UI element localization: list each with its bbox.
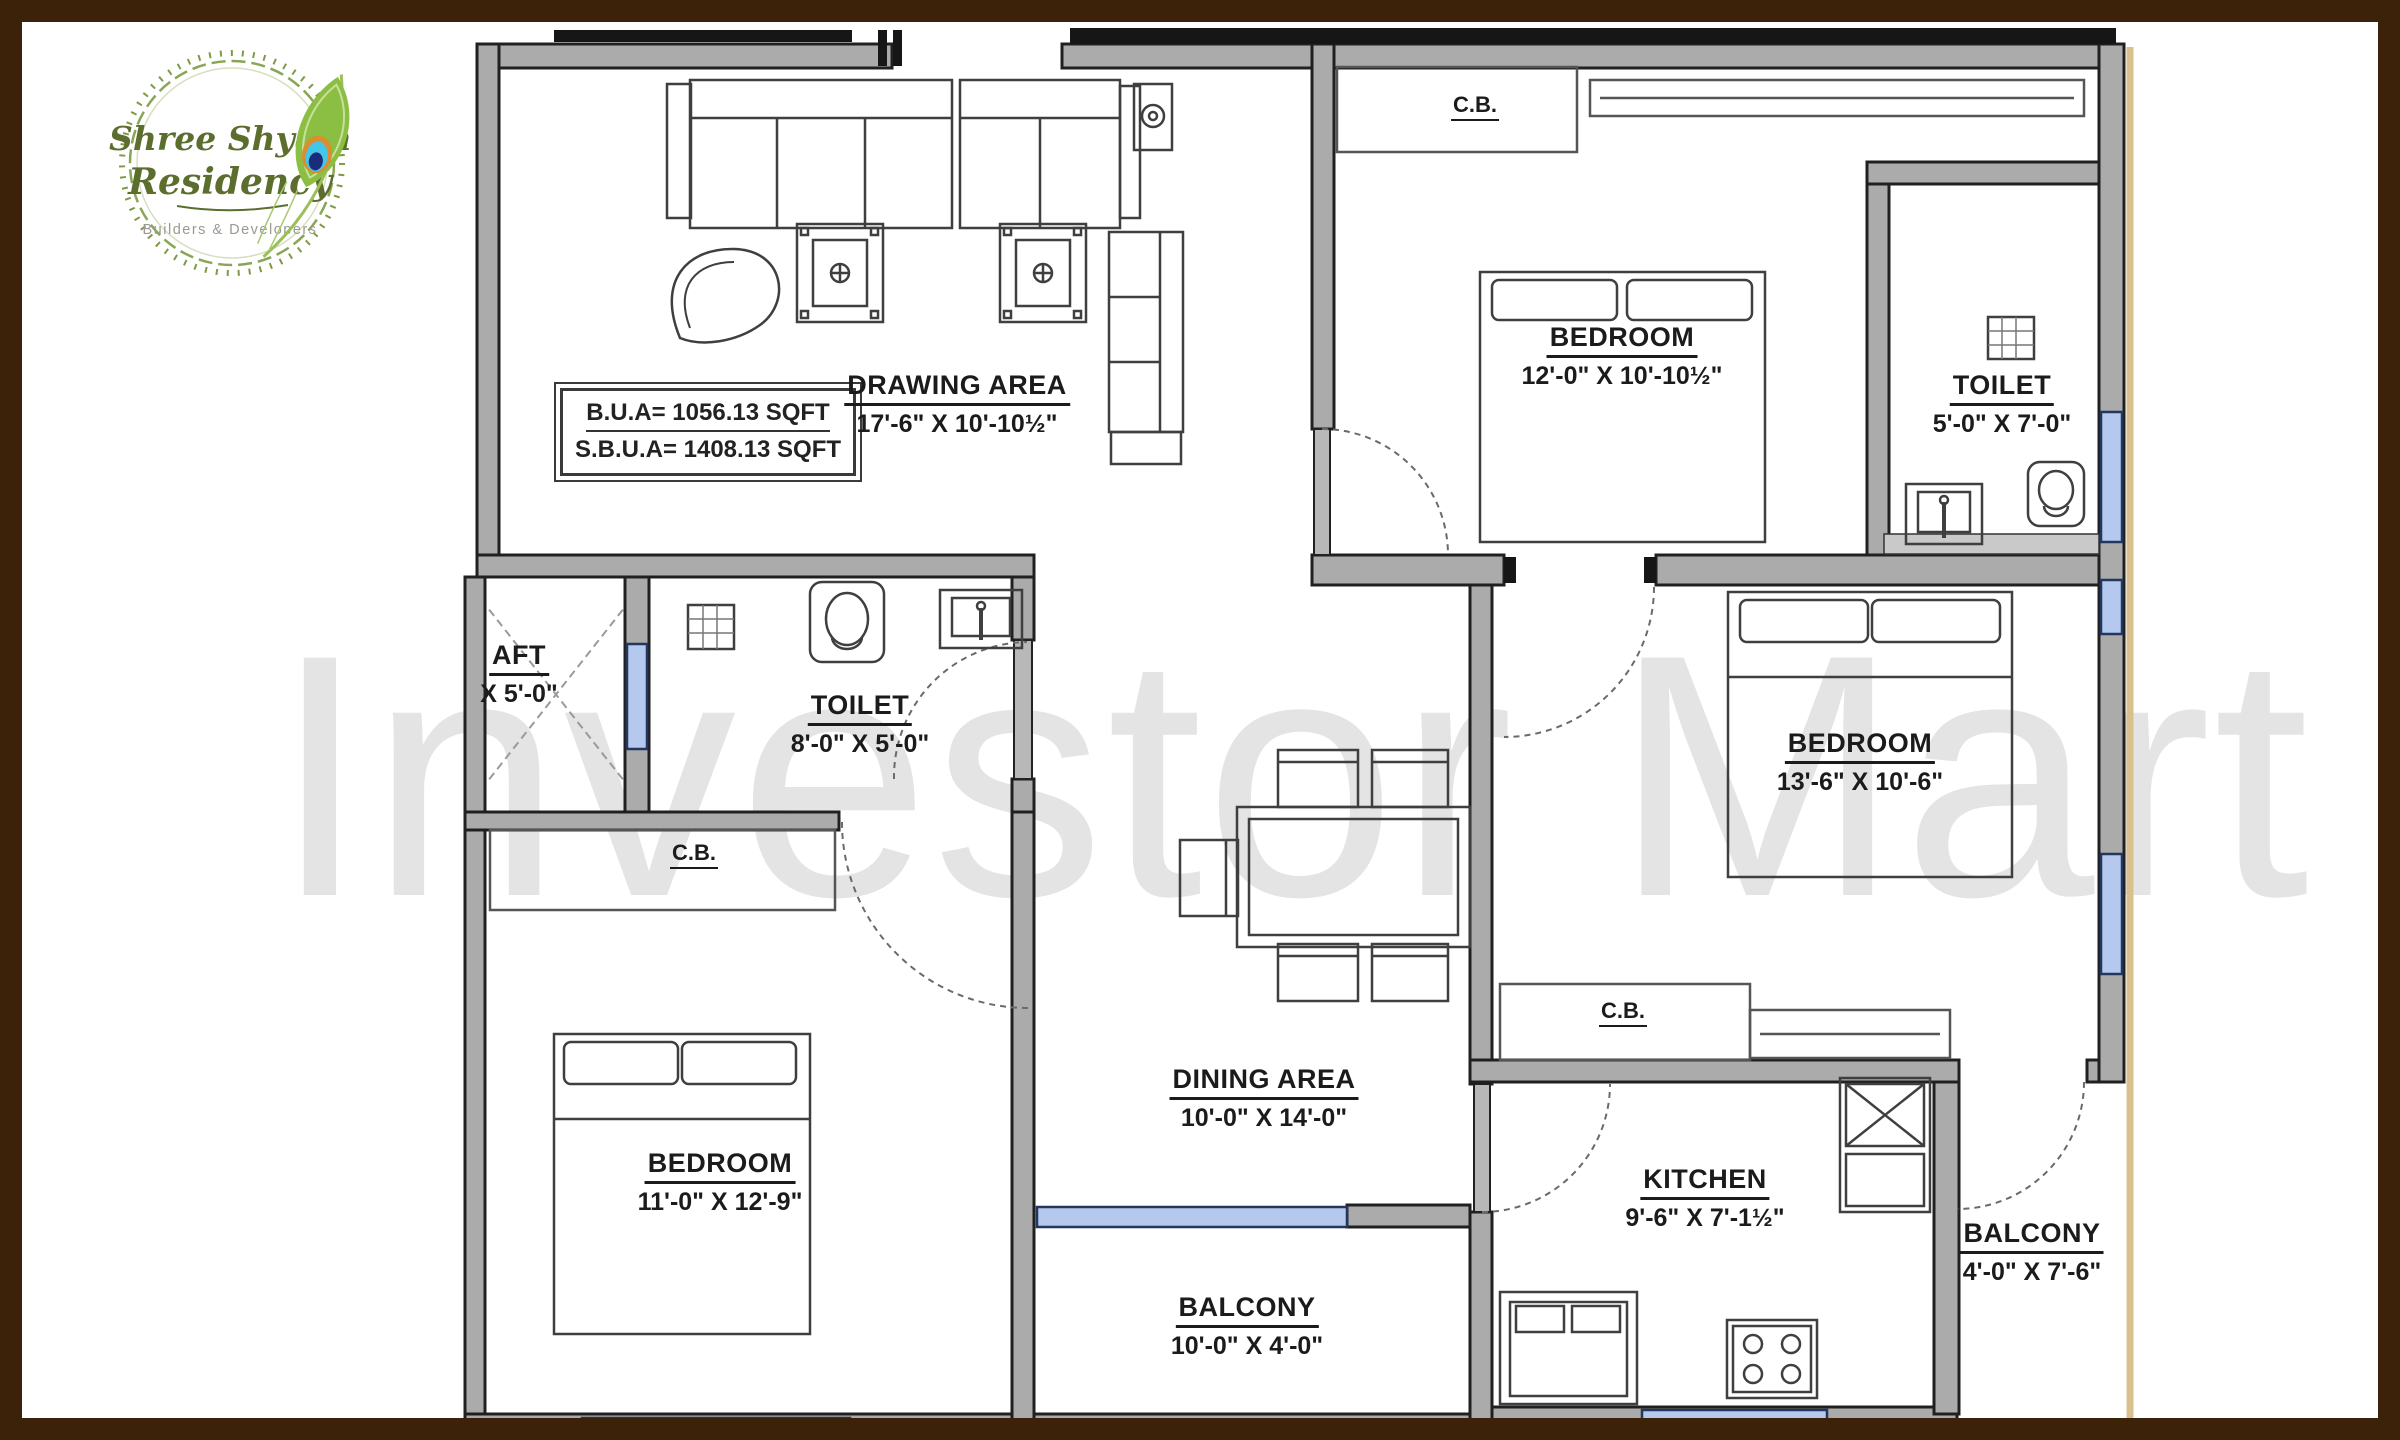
label-bedroom-top-right: BEDROOM 12'-0" X 10'-10½" bbox=[1522, 322, 1723, 391]
label-bedroom-bottom-left: BEDROOM 11'-0" X 12'-9" bbox=[638, 1148, 803, 1217]
fridge-box bbox=[1840, 1078, 1930, 1212]
stove bbox=[1727, 1320, 1817, 1398]
label-cupboard-right: C.B. bbox=[1599, 998, 1647, 1027]
bua-line: B.U.A= 1056.13 SQFT bbox=[586, 399, 829, 432]
floorplan-page: Investor Mart bbox=[0, 0, 2400, 1440]
kitchen-counter bbox=[1500, 1292, 1637, 1404]
label-cupboard-top-right: C.B. bbox=[1451, 92, 1499, 121]
label-toilet-top-right: TOILET 5'-0" X 7'-0" bbox=[1933, 370, 2071, 439]
built-up-area-box: B.U.A= 1056.13 SQFT S.B.U.A= 1408.13 SQF… bbox=[560, 388, 856, 476]
coffee-table-2 bbox=[1000, 224, 1086, 322]
label-balcony-bottom: BALCONY 10'-0" X 4'-0" bbox=[1171, 1292, 1323, 1361]
label-drawing-area: DRAWING AREA 17'-6" X 10'-10½" bbox=[844, 370, 1070, 439]
label-kitchen: KITCHEN 9'-6" X 7'-1½" bbox=[1625, 1164, 1784, 1233]
bed-top-right bbox=[1480, 272, 1765, 542]
dining-table bbox=[1237, 807, 1470, 947]
armchair bbox=[672, 249, 779, 342]
coffee-table-1 bbox=[797, 224, 883, 322]
label-shaft: AFT X 5'-0" bbox=[480, 640, 558, 709]
sbua-line: S.B.U.A= 1408.13 SQFT bbox=[569, 436, 847, 464]
label-toilet-middle: TOILET 8'-0" X 5'-0" bbox=[791, 690, 929, 759]
dining-chairs bbox=[1180, 750, 1448, 1001]
sofa-main bbox=[667, 80, 1140, 228]
label-dining-area: DINING AREA 10'-0" X 14'-0" bbox=[1169, 1064, 1358, 1133]
toilet-middle-fixtures bbox=[688, 582, 1022, 662]
label-balcony-right: BALCONY 4'-0" X 7'-6" bbox=[1961, 1218, 2104, 1287]
label-bedroom-right: BEDROOM 13'-6" X 10'-6" bbox=[1777, 728, 1943, 797]
label-cupboard-bottom-left: C.B. bbox=[670, 840, 718, 869]
logo-badge: Shree Shyam Residency Builders & Develop… bbox=[92, 48, 392, 283]
sofa-side bbox=[1109, 232, 1183, 464]
